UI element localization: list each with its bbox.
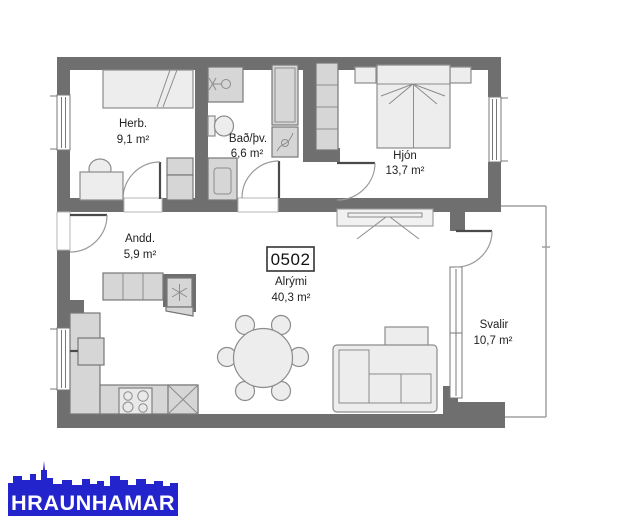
room-area-master: 13,7 m²: [386, 165, 425, 177]
entry-door: [70, 215, 107, 252]
room-area-living: 40,3 m²: [272, 292, 311, 304]
skyline-icon: [8, 461, 178, 491]
nightstand-right-icon: [450, 67, 471, 83]
cooktop-icon: [119, 388, 152, 414]
vanity-sink-icon: [208, 67, 243, 102]
room-label-master: Hjón: [393, 150, 417, 162]
window-balcony-glass: [450, 267, 462, 398]
service-shaft-icon: [166, 278, 193, 316]
master-bedroom-door: [337, 163, 375, 200]
balcony-railing: [501, 206, 550, 417]
bath-cabinet-icon: [272, 65, 298, 125]
logo-text: HRAUNHAMAR: [11, 492, 175, 515]
kitchen-fixtures: [70, 313, 198, 414]
window-master-bedroom: [489, 97, 508, 162]
agency-logo: HRAUNHAMAR: [8, 461, 178, 516]
sink-unit-icon: [168, 385, 198, 414]
living-furniture: [218, 316, 438, 413]
unit-number-box: 0502: [267, 247, 314, 271]
room-area-bathroom: 6,6 m²: [231, 148, 264, 160]
floor-plan-page: Herb. 9,1 m² Bað/þv. 6,6 m² Hjón 13,7 m²…: [0, 0, 617, 524]
shower-icon: [272, 127, 298, 157]
washer-icon: [208, 158, 237, 200]
wardrobe-column-icon: [316, 63, 338, 150]
room-label-bedroom1: Herb.: [119, 118, 147, 130]
single-bed-icon: [103, 70, 193, 108]
sliding-closet-icon: [337, 209, 433, 239]
dining-set-icon: [218, 316, 309, 401]
room-label-balcony: Svalir: [480, 319, 509, 331]
window-kitchen: [50, 328, 70, 390]
bedroom1-door: [123, 162, 160, 199]
nightstand-left-icon: [355, 67, 376, 83]
room-area-bedroom1: 9,1 m²: [117, 134, 150, 146]
floor-plan-drawing: Herb. 9,1 m² Bað/þv. 6,6 m² Hjón 13,7 m²…: [0, 0, 617, 524]
room-area-entry: 5,9 m²: [124, 249, 157, 261]
room-area-balcony: 10,7 m²: [474, 335, 513, 347]
sofa-icon: [333, 345, 437, 412]
room-label-living: Alrými: [275, 276, 307, 288]
entry-wardrobe-icon: [103, 273, 163, 300]
entry-furniture: [103, 273, 193, 316]
desk-chair-icon: [80, 159, 123, 200]
balcony-door: [456, 231, 492, 267]
dresser-icon: [167, 158, 193, 200]
room-label-entry: Andd.: [125, 233, 155, 245]
bathroom-door: [242, 161, 279, 198]
window-bedroom1: [50, 95, 70, 150]
unit-number: 0502: [271, 250, 311, 269]
double-bed-icon: [377, 65, 450, 148]
room-label-bathroom: Bað/þv.: [229, 133, 267, 145]
